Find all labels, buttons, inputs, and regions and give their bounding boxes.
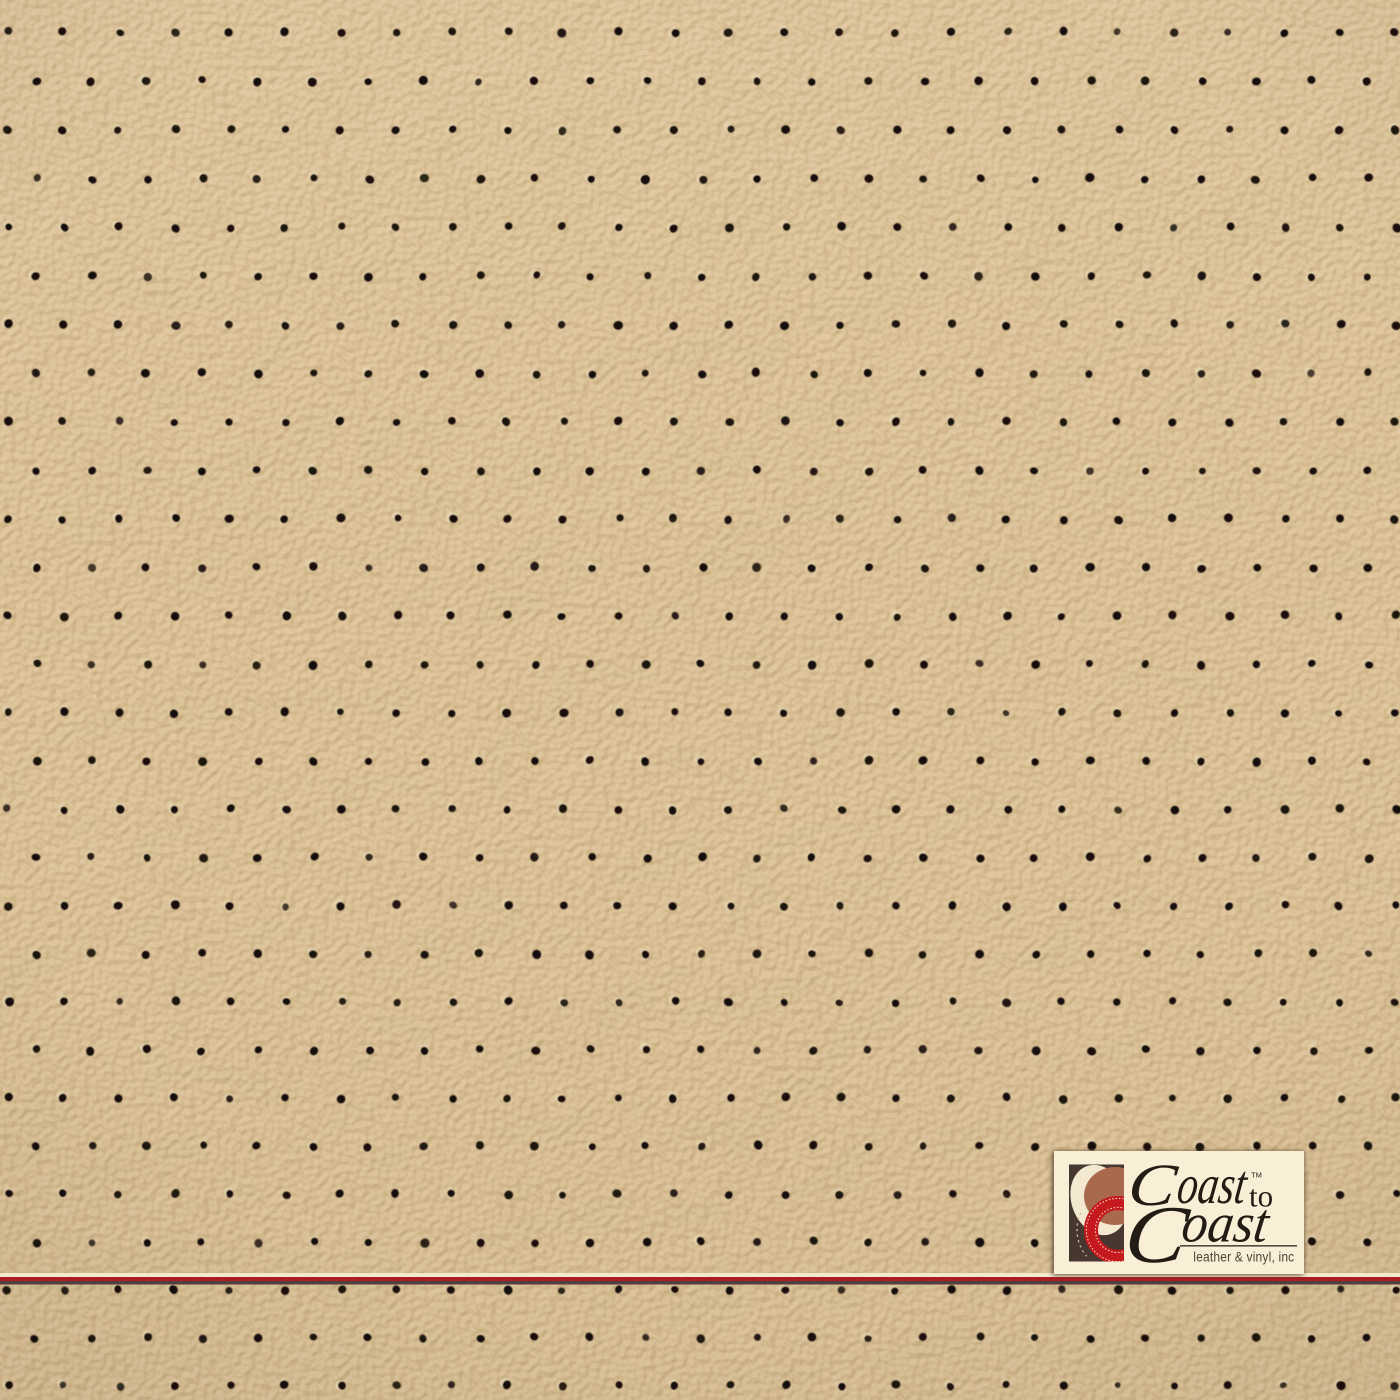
svg-text:oast: oast — [1178, 1192, 1275, 1254]
svg-text:leather & vinyl, inc: leather & vinyl, inc — [1193, 1248, 1294, 1264]
